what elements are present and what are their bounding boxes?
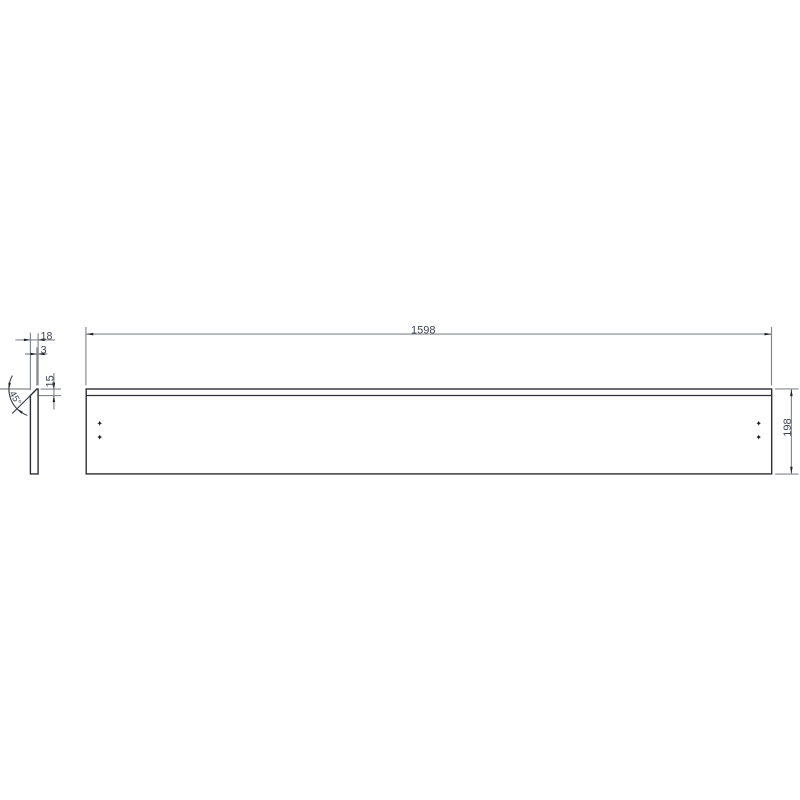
- svg-text:15: 15: [45, 375, 57, 387]
- svg-text:198: 198: [782, 418, 794, 436]
- svg-text:18: 18: [41, 330, 53, 342]
- svg-text:1598: 1598: [411, 325, 435, 337]
- svg-text:3: 3: [41, 345, 47, 357]
